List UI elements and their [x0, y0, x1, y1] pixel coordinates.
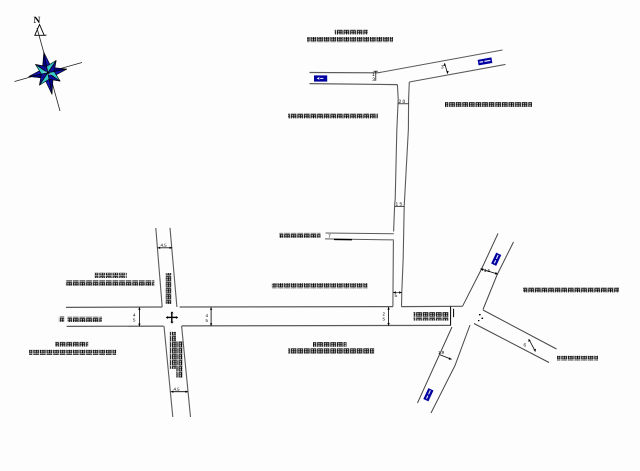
svg-text:3: 3 [372, 77, 375, 83]
svg-text:5: 5 [394, 293, 397, 298]
svg-text:4.5: 4.5 [484, 268, 491, 273]
svg-text:4.5: 4.5 [160, 243, 167, 248]
svg-text:3: 3 [441, 64, 444, 69]
svg-text:1.9: 1.9 [438, 350, 445, 355]
svg-text:7: 7 [328, 234, 331, 240]
svg-text:4.5: 4.5 [173, 387, 180, 392]
svg-text:6: 6 [523, 342, 526, 347]
